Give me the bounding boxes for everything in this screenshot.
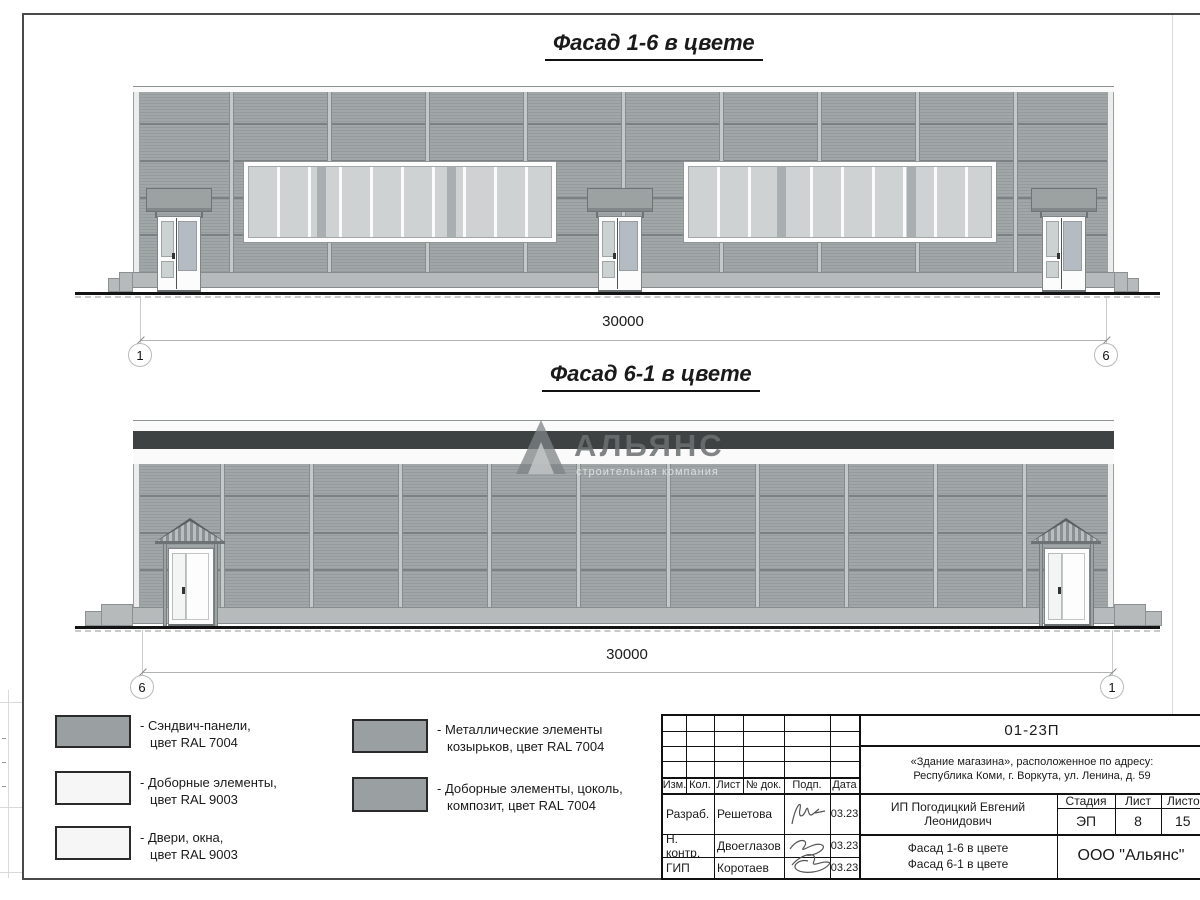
legend-line: цвет RAL 9003 [140,846,238,863]
axis-marker-6: 6 [1094,343,1118,367]
door-glass [161,261,174,278]
canopy-bracket [201,212,203,218]
door-handle [182,587,185,594]
dimension-value: 30000 [606,646,648,663]
frame-left [22,13,24,880]
tb-sheet-title-line1: Фасад 1-6 в цвете [908,840,1009,856]
door-glass [1046,261,1059,278]
panel-mullion [487,464,492,607]
sandwich-panels [133,464,1114,607]
axis-number: 6 [1102,348,1109,363]
tb-role: Разраб. [663,793,714,834]
gable-canopy [155,518,225,542]
entrance-door [168,548,214,626]
legend-label: - Сэндвич-панели, цвет RAL 7004 [140,717,251,751]
door-handle [1057,253,1060,259]
tb-header-data: Дата [830,777,859,793]
panel-mullion [229,92,234,278]
tb-stage-label: Стадия [1057,793,1115,808]
axis-marker-1: 1 [128,343,152,367]
canopy-post [163,544,167,626]
tb-sheet-label: Лист [1115,793,1161,808]
facade-16-elevation [133,86,1114,292]
dimension-line [140,340,1106,341]
window-dark-pane [447,167,456,237]
legend-label: - Доборные элементы, цоколь, композит, ц… [437,780,623,814]
legend-line: цвет RAL 7004 [140,734,251,751]
ground-line [75,626,1160,629]
ground-line [75,292,1160,295]
drawing-sheet: { "drawing": { "facade16_title": "Фасад … [0,0,1200,900]
corner-trim [133,464,140,607]
door-glass [619,221,638,271]
tb-line [663,746,859,747]
frame-right-faint [1172,15,1173,714]
ground-hatch [75,630,1160,632]
gable-canopy [1031,518,1101,542]
axis-marker-6: 6 [130,675,154,699]
tb-sheet-title-line2: Фасад 6-1 в цвете [908,856,1009,872]
tb-object-line1: «Здание магазина», расположенное по адре… [911,755,1154,769]
plinth [127,607,1120,624]
legend-line: - Сэндвич-панели, [140,717,251,734]
panel-mullion [844,464,849,607]
tb-sheet-value: 8 [1115,808,1161,834]
legend-swatch-sandwich-panels [55,715,131,748]
door-glass [178,221,197,271]
tb-object-address: «Здание магазина», расположенное по адре… [859,745,1200,793]
window-panes [249,167,551,237]
window-dark-pane [777,167,786,237]
canopy-bracket [1086,212,1088,218]
legend-line: - Двери, окна, [140,829,238,846]
panel-joint [133,532,1114,534]
gable-stripes [157,521,223,541]
entrance-steps [1114,604,1146,626]
door-leaf [186,553,209,620]
legend-line: цвет RAL 9003 [140,791,277,808]
entrance-door [157,216,201,292]
margin-mark [2,738,6,739]
panel-mullion [755,464,760,607]
tb-date: 03.23 [830,793,859,834]
tb-sheets-value: 15 [1161,808,1200,834]
tb-client: ИП Погодицкий Евгений Леонидович [859,793,1057,834]
door-leaf [178,221,197,287]
legend-swatch-plinth-composite [352,777,428,812]
tb-header-list: Лист [714,777,743,793]
legend-swatch-trim-elements [55,771,131,805]
trim-strip [133,449,1114,465]
tb-date: 03.23 [830,857,859,878]
window-dark-pane [907,167,916,237]
door-handle [172,253,175,259]
axis-number: 1 [136,348,143,363]
canopy-post [1090,544,1094,626]
entrance-door [1044,548,1090,626]
legend-line: козырьков, цвет RAL 7004 [437,738,604,755]
signature-razrab-icon [786,796,828,832]
entrance-canopy [587,188,653,212]
legend-swatch-doors-windows [55,826,131,860]
door-glass [161,221,174,257]
tb-header-doc: № док. [743,777,784,793]
ground-hatch [75,296,1160,298]
tb-header-izm: Изм. [663,777,686,793]
panel-mullion [933,464,938,607]
entrance-steps [1114,272,1128,292]
door-leaf [619,221,638,287]
canopy-post [214,544,218,626]
entrance-door [1042,216,1086,292]
legend-line: - Металлические элементы [437,721,604,738]
corner-trim [133,92,140,278]
ribbon-window-right [683,161,997,243]
signature-gip-icon [784,835,832,877]
door-glass [1063,221,1082,271]
tb-stage-value: ЭП [1057,808,1115,834]
door-glass [1046,221,1059,257]
entrance-canopy [146,188,212,212]
legend-label: - Двери, окна, цвет RAL 9003 [140,829,238,863]
door-divider [176,218,177,289]
door-handle [1058,587,1061,594]
legend-label: - Доборные элементы, цвет RAL 9003 [140,774,277,808]
axis-number: 1 [1108,680,1115,695]
window-dark-pane [317,167,326,237]
window-panes [689,167,991,237]
tb-doc-number: 01-23П [859,716,1200,745]
tb-role: ГИП [663,857,714,878]
corner-trim [1107,92,1114,278]
ribbon-window-left [243,161,557,243]
margin-mark [2,762,6,763]
margin-line [8,690,9,878]
door-divider [617,218,618,289]
panel-joint [133,569,1114,571]
legend-swatch-canopy-metal [352,719,428,753]
facade-61-elevation [133,420,1114,627]
tb-date: 03.23 [830,834,859,857]
panel-mullion [398,464,403,607]
dimension-value: 30000 [602,313,644,330]
window-glass [688,166,992,238]
door-glass [602,221,615,257]
gable-stripes [1033,521,1099,541]
tb-object-line2: Республика Коми, г. Воркута, ул. Ленина,… [913,769,1150,783]
panel-mullion [1013,92,1018,278]
tb-header-podp: Подп. [784,777,830,793]
door-leaf [1062,553,1085,620]
tb-company: ООО "Альянс" [1057,834,1200,878]
tb-role: Н. контр. [663,834,714,857]
margin-line [0,872,22,873]
legend-label: - Металлические элементы козырьков, цвет… [437,721,604,755]
corner-trim [1107,464,1114,607]
canopy-bracket [642,212,644,218]
dimension-line [142,672,1112,673]
door-handle [613,253,616,259]
tb-sheets-label: Листов [1161,793,1200,808]
panel-mullion [666,464,671,607]
entrance-steps [101,604,133,626]
panel-mullion [1022,464,1027,607]
door-glass [602,261,615,278]
axis-marker-1: 1 [1100,675,1124,699]
tb-name: Двоеглазов [714,834,784,857]
tb-name: Коротаев [714,857,784,878]
margin-line [0,807,22,808]
canopy-post [1039,544,1043,626]
panel-mullion [576,464,581,607]
tb-name: Решетова [714,793,784,834]
legend-line: композит, цвет RAL 7004 [437,797,623,814]
facade-61-title: Фасад 6-1 в цвете [542,361,760,392]
panel-mullion [309,464,314,607]
frame-top [22,13,1200,15]
axis-number: 6 [138,680,145,695]
tb-line [663,731,859,732]
legend-line: - Доборные элементы, [140,774,277,791]
margin-line [0,702,22,703]
entrance-canopy [1031,188,1097,212]
entrance-steps [119,272,133,292]
tb-sheet-title: Фасад 1-6 в цвете Фасад 6-1 в цвете [859,834,1057,878]
door-divider [1061,218,1062,289]
panel-joint [133,495,1114,497]
tb-line [663,761,859,762]
tb-header-kol: Кол. [686,777,714,793]
window-glass [248,166,552,238]
door-leaf [1063,221,1082,287]
title-block: Изм. Кол. Лист № док. Подп. Дата Разраб.… [661,714,1200,880]
legend-line: - Доборные элементы, цоколь, [437,780,623,797]
entrance-door [598,216,642,292]
margin-mark [2,786,6,787]
facade-16-title: Фасад 1-6 в цвете [545,30,763,61]
composite-band [133,431,1114,450]
